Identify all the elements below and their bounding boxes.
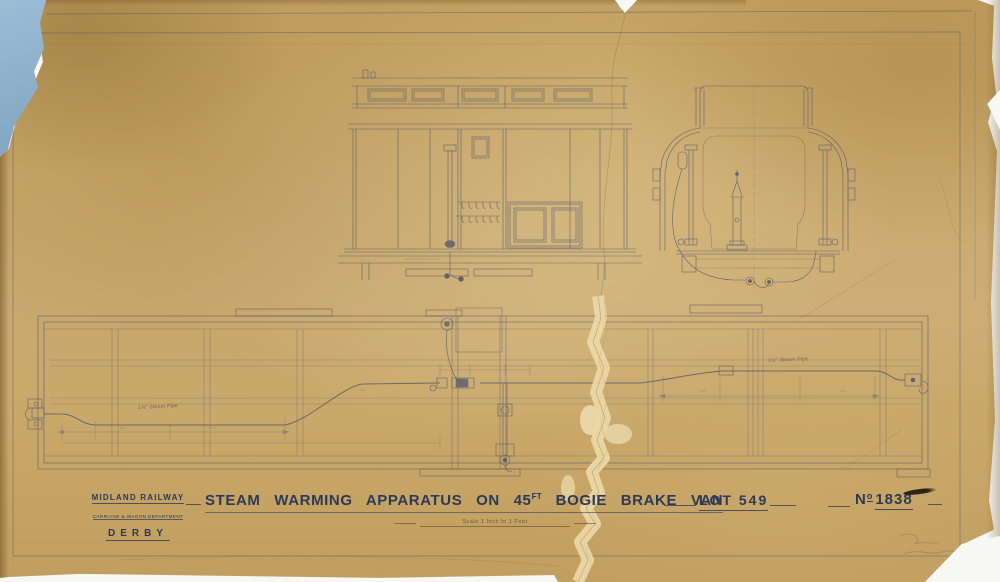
end-section-view — [653, 84, 855, 290]
paper-creases — [46, 2, 970, 566]
underframe-plan-view — [26, 305, 931, 477]
dimension-lines — [58, 364, 879, 450]
scanned-engineering-drawing: MIDLAND RAILWAY CARRIAGE & WAGON DEPARTM… — [0, 0, 1000, 582]
sheet-border — [13, 11, 975, 556]
side-elevation-view — [338, 70, 642, 281]
drawing-linework — [0, 0, 1000, 582]
